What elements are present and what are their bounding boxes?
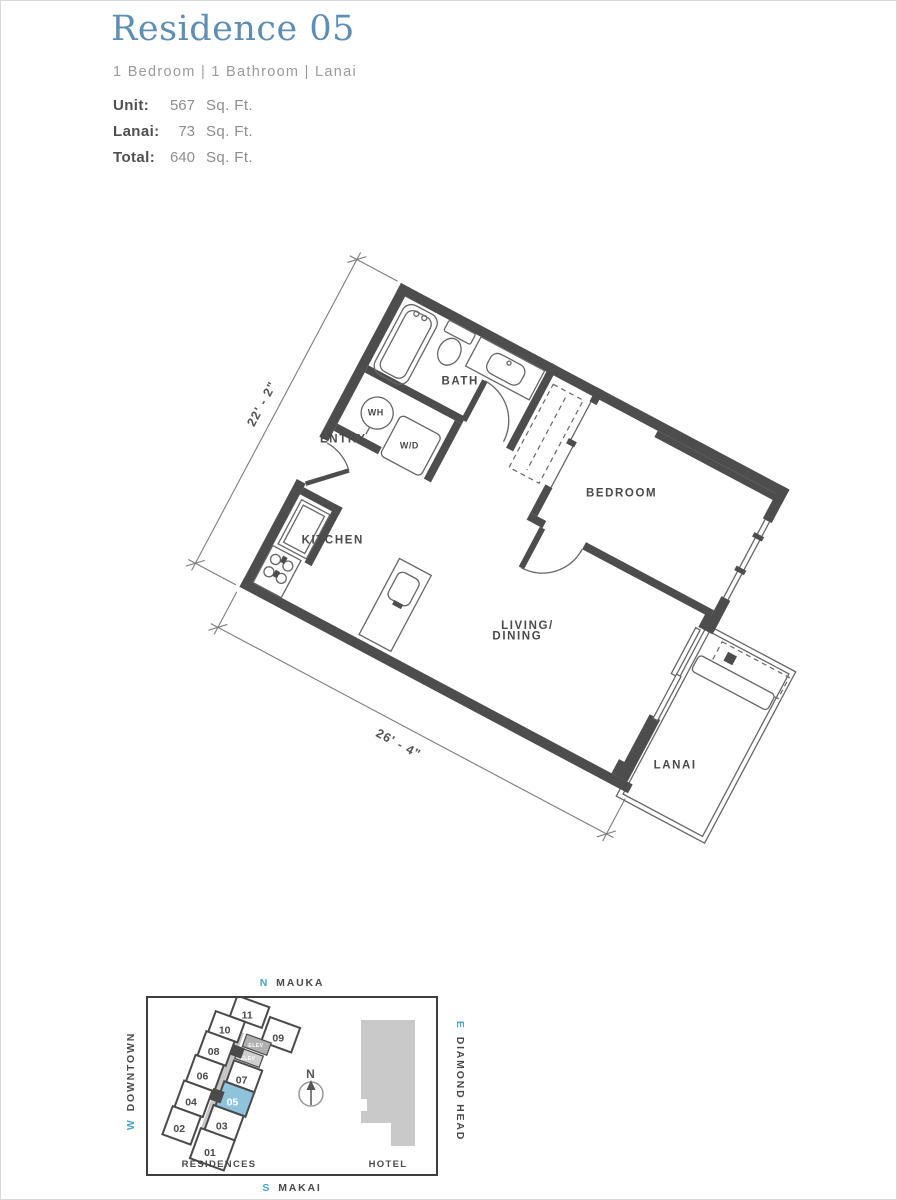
hotel-label: HOTEL [369,1159,408,1170]
direction-letter: N [260,977,269,989]
direction-name: DIAMOND HEAD [454,1037,466,1141]
svg-text:11: 11 [242,1009,253,1021]
svg-text:04: 04 [185,1096,197,1108]
washer-dryer-label: W/D [400,440,419,450]
direction-label-west: WDOWNTOWN [125,1032,137,1130]
svg-text:09: 09 [272,1032,284,1044]
kitchen-label: KITCHEN [302,534,364,546]
direction-name: MAKAI [278,1182,321,1194]
svg-text:ELEV: ELEV [240,1056,255,1062]
bedroom-closet [509,383,596,490]
living-label-line2: DINING [492,630,542,642]
entry-door [306,443,356,499]
site-map-drawing: N 11 09 10 [148,998,436,1174]
kitchen-island-sink [359,559,431,652]
site-map-box: N 11 09 10 [146,996,438,1176]
bedroom-label: BEDROOM [586,488,657,500]
hotel-building-shape [361,1020,415,1146]
direction-label-south: SMAKAI [262,1182,321,1194]
dimension-bottom: 26' - 4" [199,588,632,859]
direction-letter: E [454,1021,466,1030]
direction-letter: S [262,1182,271,1194]
compass-north-letter: N [306,1067,316,1081]
entry-label: ENTRY [320,434,367,446]
svg-text:06: 06 [197,1071,209,1083]
dimension-left: 22' - 2" [171,242,401,592]
water-heater-label: WH [368,408,384,418]
dimension-left-label: 22' - 2" [244,379,279,429]
compass-icon: N [299,1067,323,1106]
svg-text:01: 01 [204,1147,216,1159]
direction-name: MAUKA [276,977,324,989]
svg-text:08: 08 [208,1046,220,1058]
bedroom-window [721,518,772,601]
direction-label-north: NMAUKA [260,977,324,989]
svg-text:10: 10 [219,1025,231,1037]
floorplan-drawing: 22' - 2" 26' - 4" [1,1,897,971]
bath-label: BATH [441,376,479,388]
direction-label-east: EDIAMOND HEAD [454,1021,466,1141]
direction-name: DOWNTOWN [125,1032,137,1112]
direction-letter: W [125,1118,137,1130]
svg-text:02: 02 [173,1123,185,1135]
residences-building: 11 09 10 ELEV ELEV [158,998,303,1174]
lanai-label: LANAI [654,760,697,772]
svg-text:05: 05 [227,1097,239,1109]
floorplan-page: Residence 05 1 Bedroom | 1 Bathroom | La… [0,0,897,1200]
svg-text:07: 07 [236,1074,248,1086]
svg-text:03: 03 [216,1120,228,1132]
residences-label: RESIDENCES [182,1159,257,1170]
dimension-bottom-label: 26' - 4" [374,726,424,761]
svg-text:ELEV: ELEV [248,1043,263,1049]
bedroom-door [519,527,583,589]
lanai-sliding-door [649,628,705,721]
